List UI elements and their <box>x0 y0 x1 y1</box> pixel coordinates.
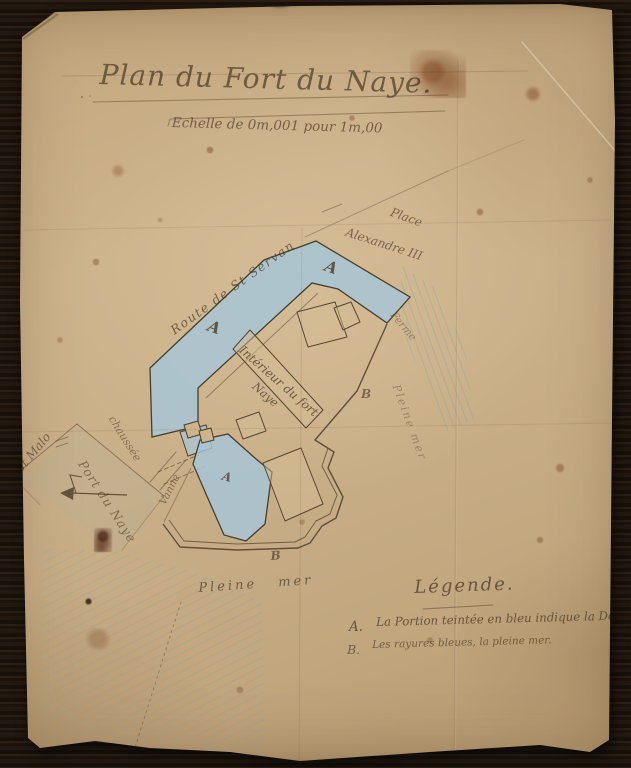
paper-sheet-wrap: Plan du Fort du Naye. Echelle de 0m,001 … <box>0 0 631 768</box>
paper-sheet: Plan du Fort du Naye. Echelle de 0m,001 … <box>0 0 631 768</box>
paper-freckles <box>0 0 631 768</box>
scanned-map-photo: Plan du Fort du Naye. Echelle de 0m,001 … <box>0 0 631 768</box>
